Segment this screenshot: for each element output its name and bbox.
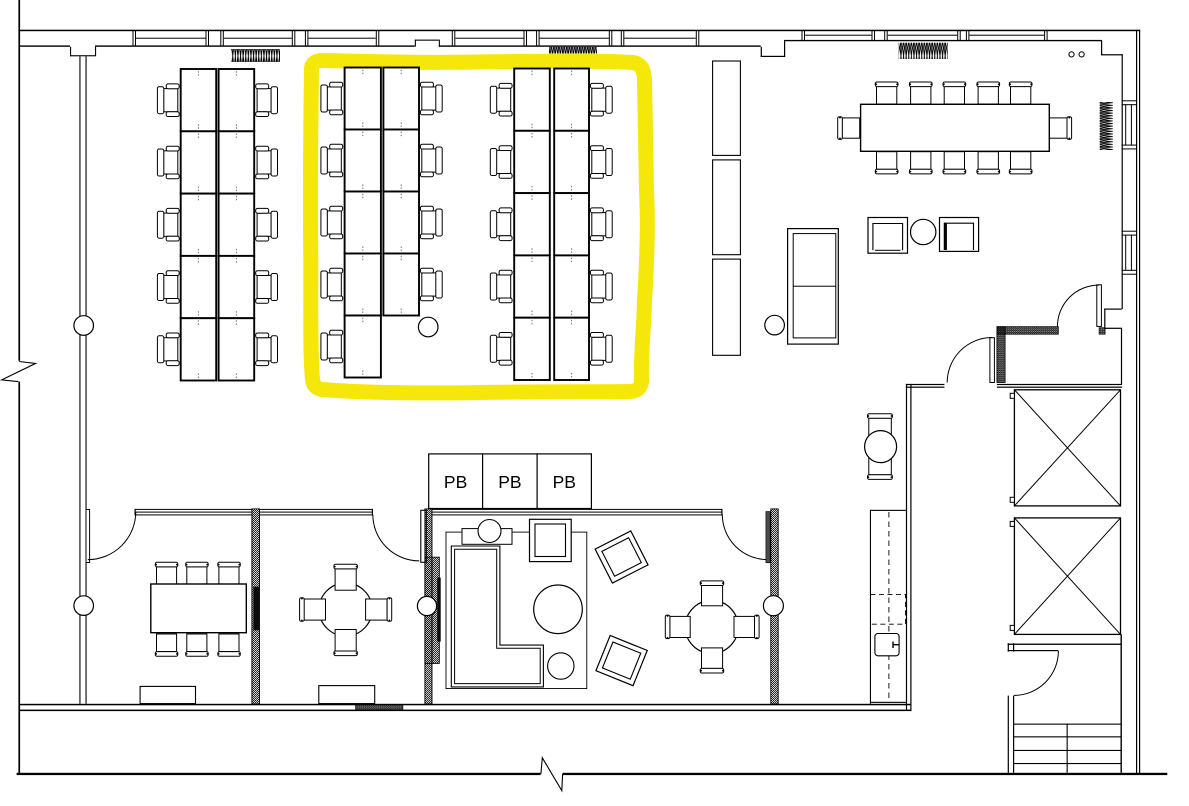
svg-text:PB: PB — [444, 472, 467, 492]
svg-text:PB: PB — [553, 472, 576, 492]
svg-text:PB: PB — [498, 472, 521, 492]
